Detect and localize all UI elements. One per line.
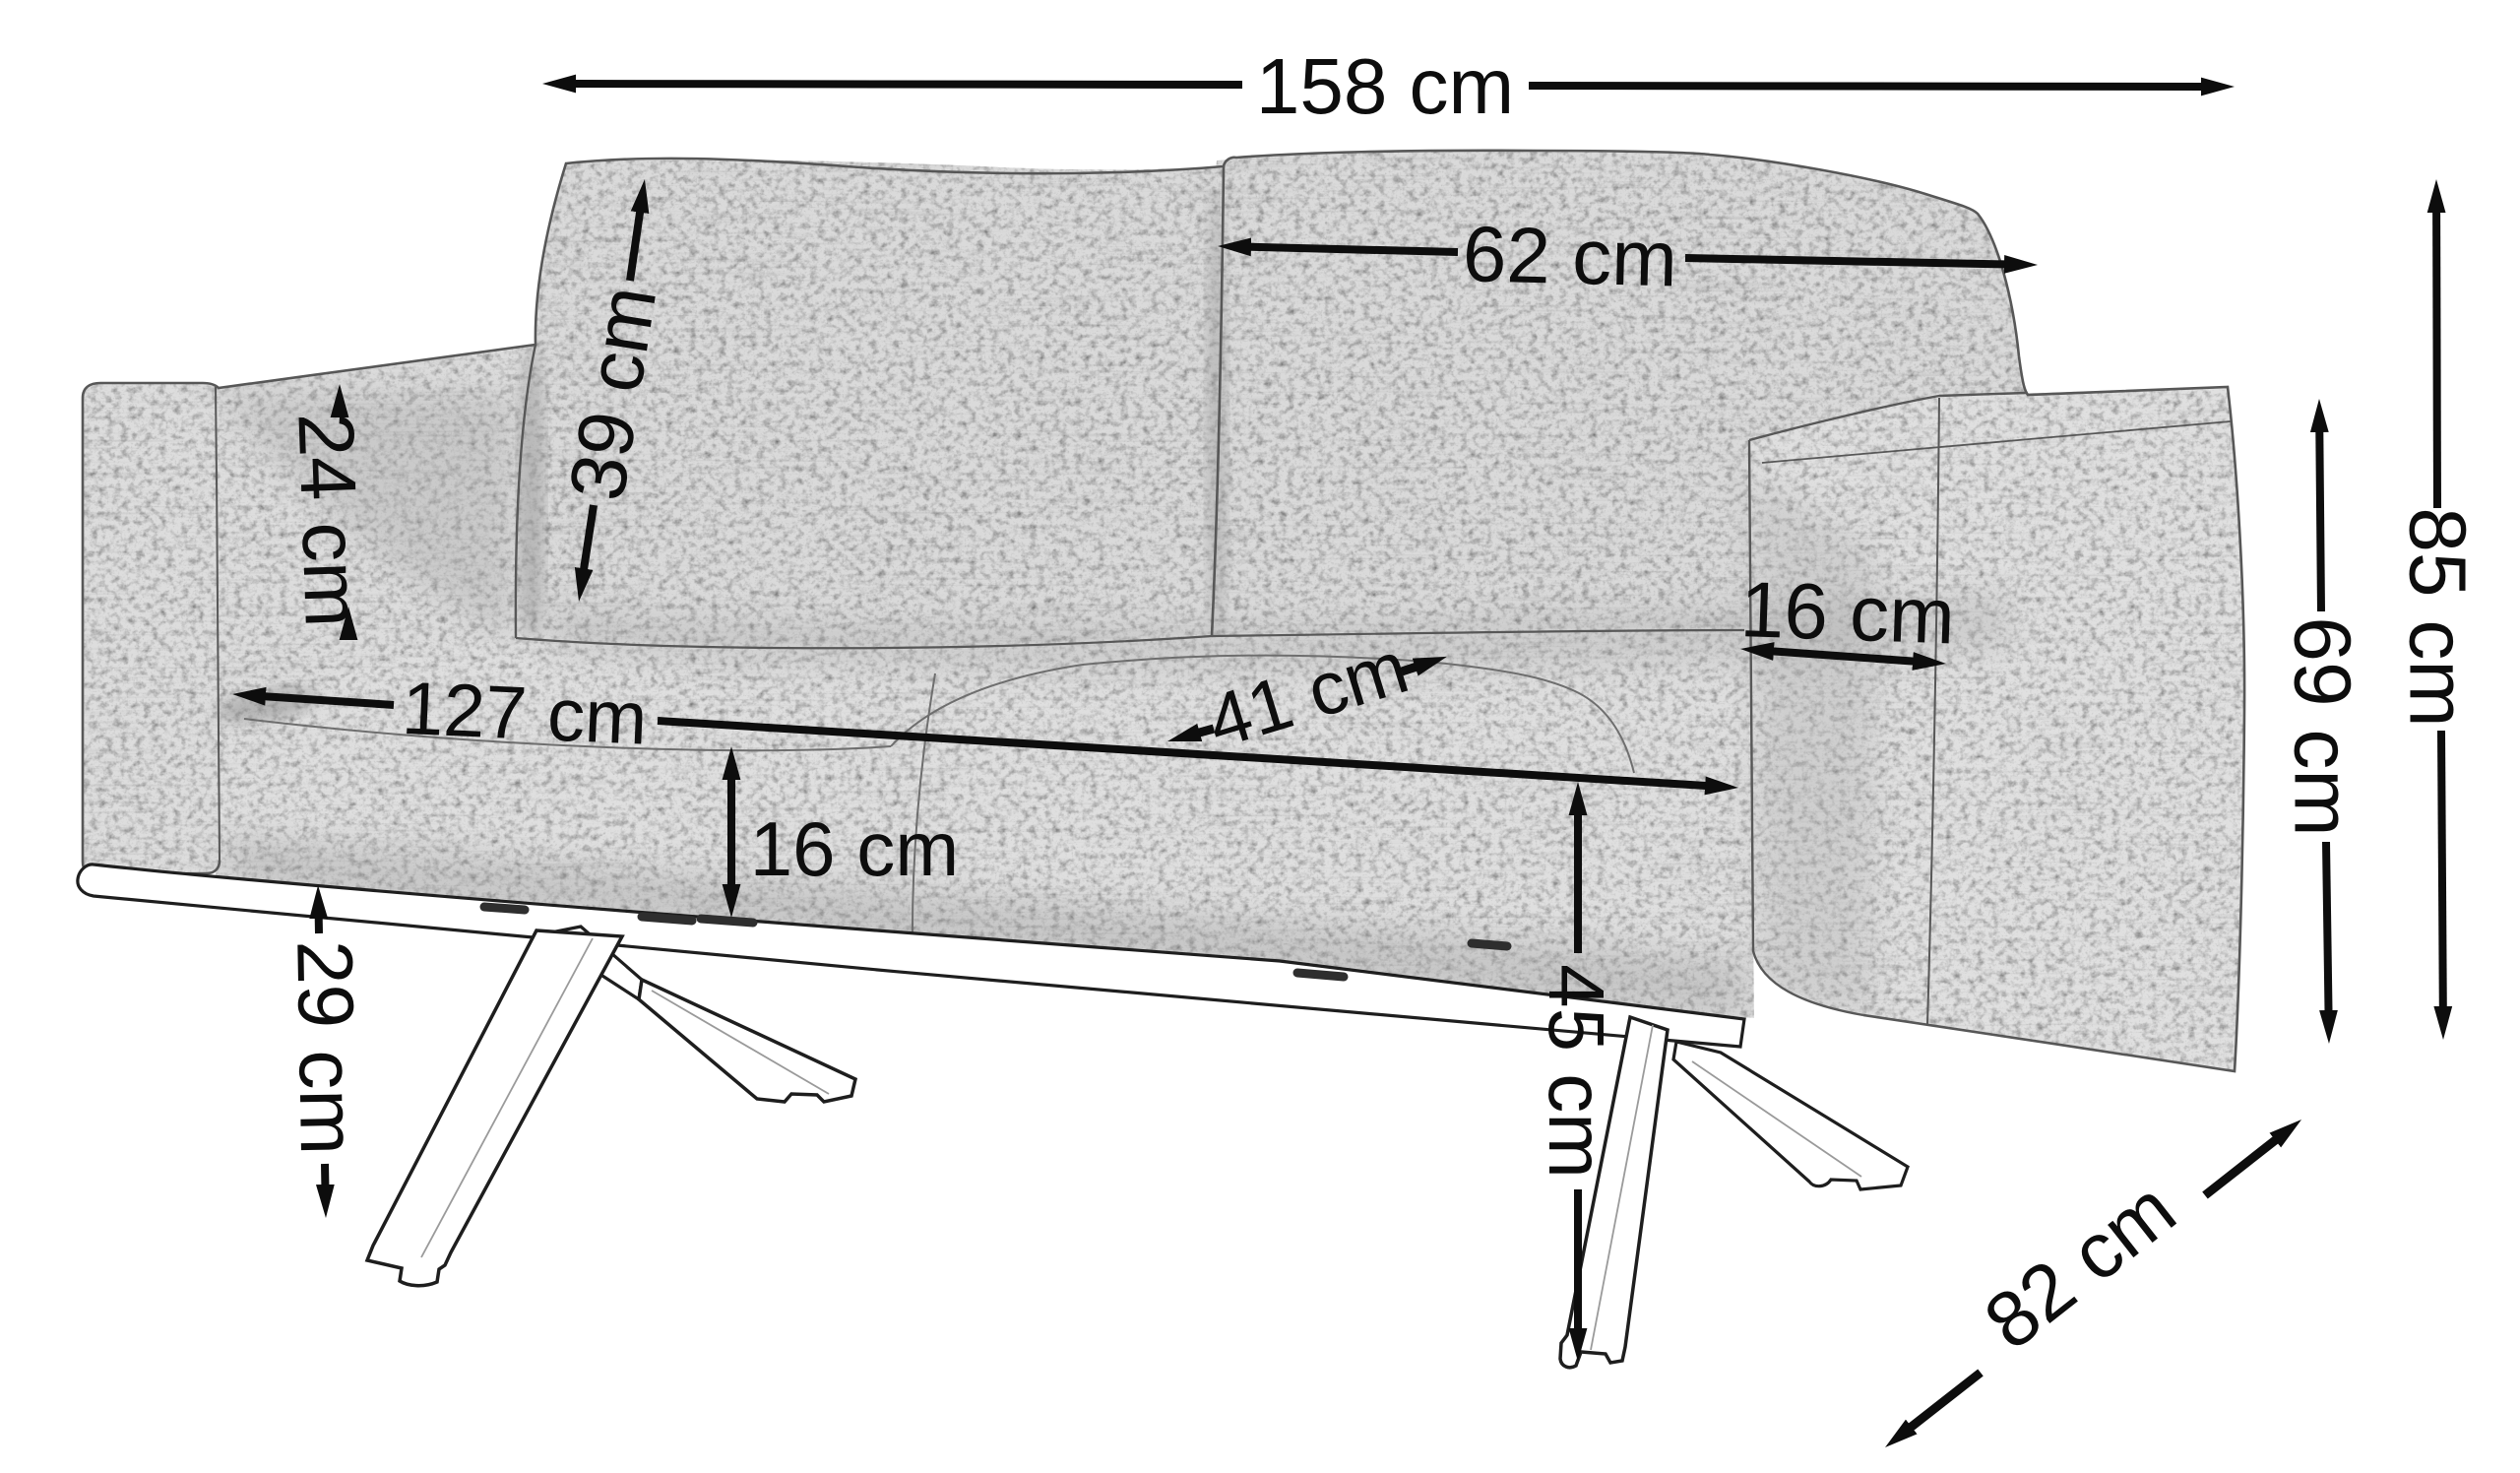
svg-text:29 cm: 29 cm [281, 939, 372, 1155]
svg-text:24 cm: 24 cm [282, 412, 377, 629]
svg-text:16 cm: 16 cm [1739, 565, 1957, 661]
svg-text:158 cm: 158 cm [1256, 42, 1514, 130]
svg-text:85 cm: 85 cm [2392, 507, 2482, 727]
svg-text:62 cm: 62 cm [1462, 210, 1678, 302]
svg-text:127 cm: 127 cm [401, 667, 650, 761]
svg-text:69 cm: 69 cm [2277, 616, 2366, 836]
svg-text:16 cm: 16 cm [750, 805, 959, 892]
svg-text:45 cm: 45 cm [1533, 964, 1620, 1179]
